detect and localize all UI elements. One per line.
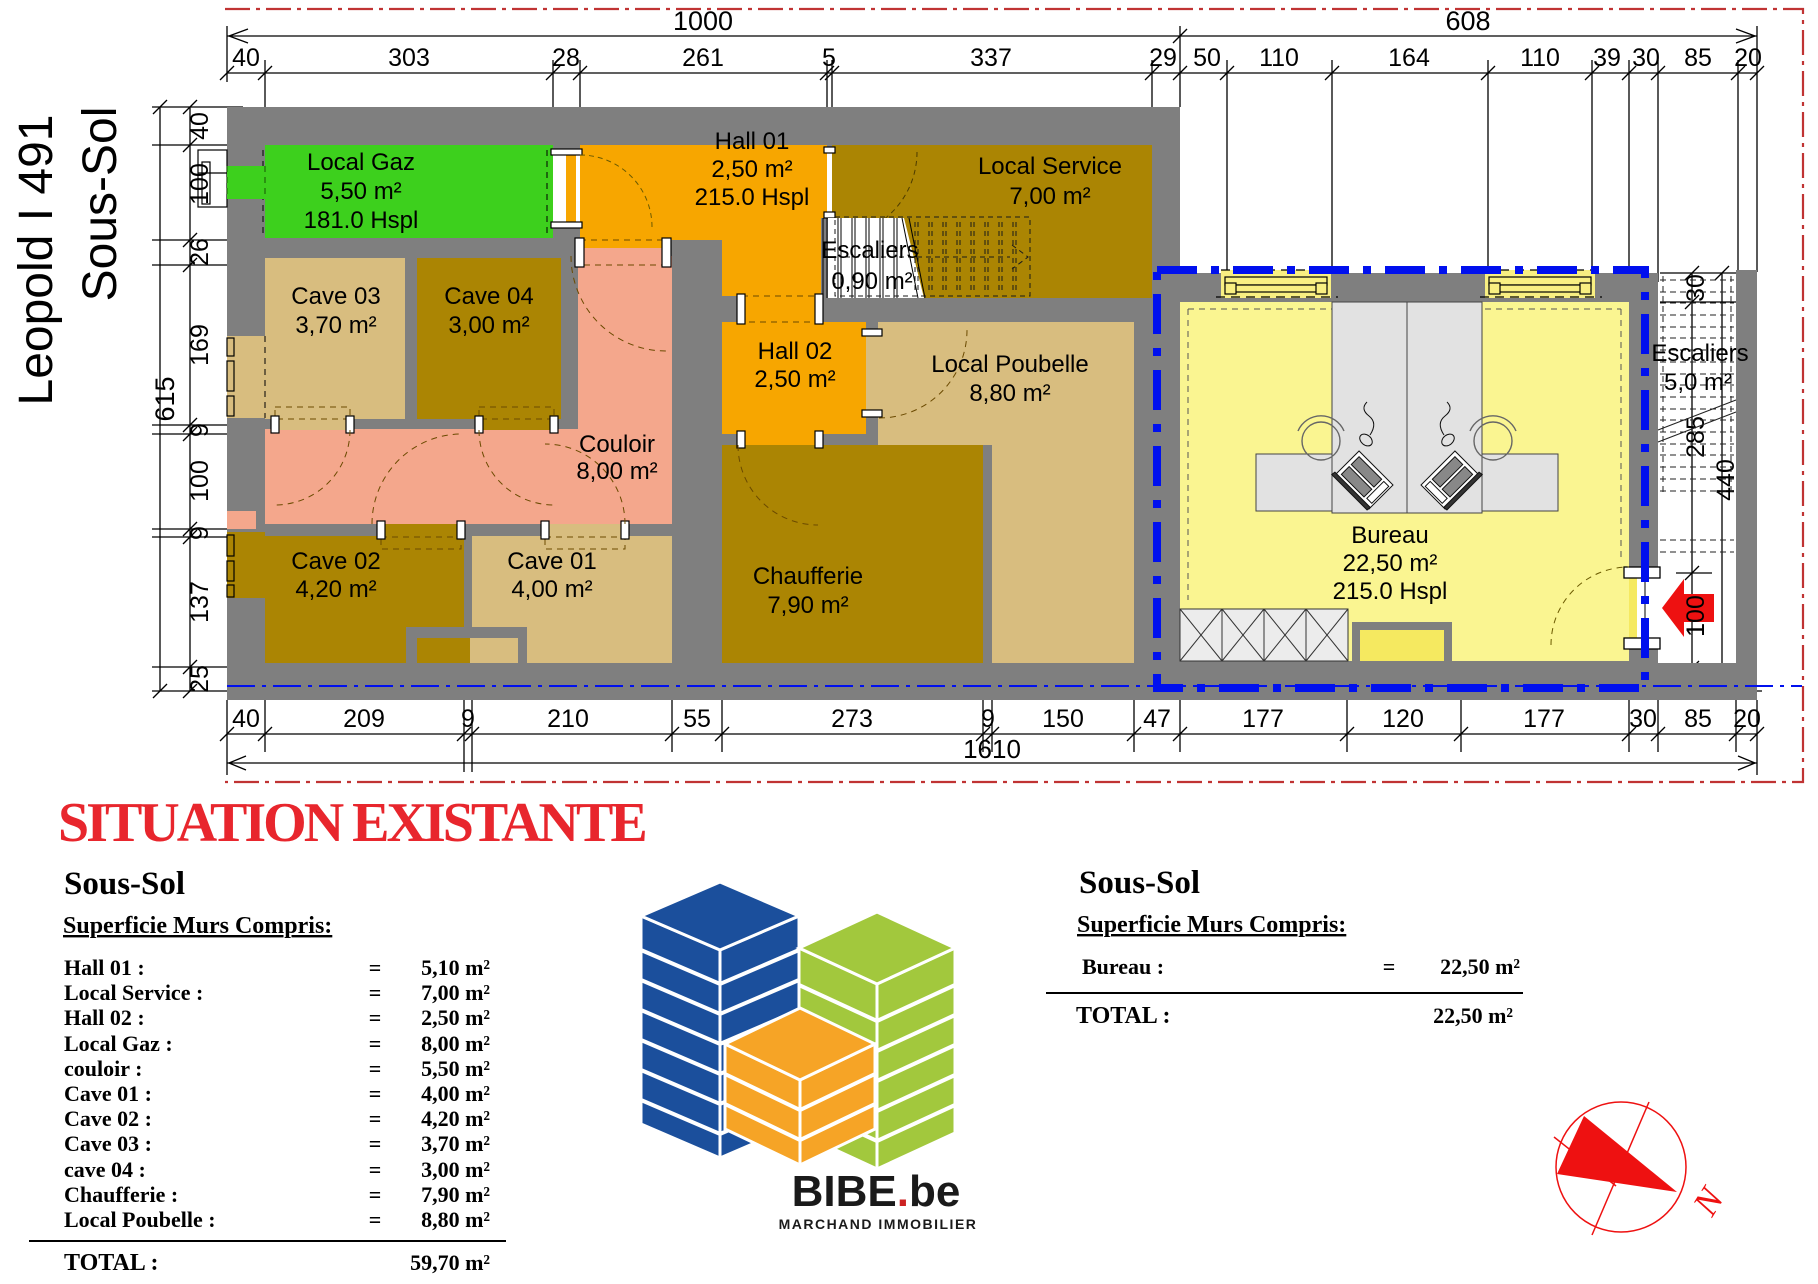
svg-text:SITUATION EXISTANTE: SITUATION EXISTANTE [58,792,645,854]
svg-text:59,70 m²: 59,70 m² [410,1250,490,1275]
svg-text:169: 169 [186,324,214,366]
svg-text:4,20 m²: 4,20 m² [295,576,376,603]
svg-text:608: 608 [1445,6,1490,36]
svg-text:215.0 Hspl: 215.0 Hspl [695,184,810,211]
svg-text:Cave 03 :: Cave 03 : [64,1131,152,1156]
svg-text:137: 137 [186,581,214,623]
svg-text:29: 29 [1149,44,1177,72]
svg-text:Cave 01: Cave 01 [507,548,596,575]
svg-text:26: 26 [186,238,214,266]
svg-text:Bureau :: Bureau : [1082,954,1164,979]
svg-text:Escaliers: Escaliers [1651,340,1748,367]
svg-text:9: 9 [186,526,214,540]
svg-text:22,50 m²: 22,50 m² [1343,550,1438,577]
svg-text:181.0 Hspl: 181.0 Hspl [304,207,419,234]
svg-text:7,90 m²: 7,90 m² [421,1182,490,1207]
svg-text:TOTAL :: TOTAL : [1076,1003,1170,1029]
svg-text:Chaufferie :: Chaufferie : [64,1182,178,1207]
svg-text:100: 100 [1682,595,1710,637]
svg-text:164: 164 [1388,44,1430,72]
svg-text:Hall 01 :: Hall 01 : [64,955,145,980]
svg-text:40: 40 [232,705,260,733]
svg-text:47: 47 [1143,705,1171,733]
svg-text:MARCHAND IMMOBILIER: MARCHAND IMMOBILIER [779,1216,978,1232]
svg-text:Cave 01 :: Cave 01 : [64,1081,152,1106]
svg-text:215.0 Hspl: 215.0 Hspl [1333,578,1448,605]
svg-text:110: 110 [1520,44,1560,72]
svg-text:3,70 m²: 3,70 m² [421,1131,490,1156]
svg-text:Hall 01: Hall 01 [715,128,790,155]
svg-text:177: 177 [1523,705,1565,733]
svg-text:8,00 m²: 8,00 m² [421,1031,490,1056]
svg-text:0,90 m²: 0,90 m² [831,268,912,295]
svg-text:337: 337 [970,44,1012,72]
svg-text:Bureau: Bureau [1351,522,1428,549]
svg-text:85: 85 [1684,705,1712,733]
svg-text:Hall 02: Hall 02 [758,338,833,365]
svg-text:177: 177 [1242,705,1284,733]
svg-text:TOTAL :: TOTAL : [64,1250,158,1276]
svg-text:Local Poubelle :: Local Poubelle : [64,1207,216,1232]
svg-text:Cave 02 :: Cave 02 : [64,1106,152,1131]
svg-text:=: = [369,1131,382,1156]
svg-text:4,00 m²: 4,00 m² [511,576,592,603]
svg-text:=: = [369,1182,382,1207]
svg-text:39: 39 [1593,44,1621,72]
svg-text:=: = [1383,954,1396,979]
svg-text:1000: 1000 [673,6,733,36]
svg-text:couloir :: couloir : [64,1056,142,1081]
svg-text:7,00 m²: 7,00 m² [1009,183,1090,210]
svg-text:3,00 m²: 3,00 m² [421,1157,490,1182]
svg-text:440: 440 [1712,459,1740,501]
svg-text:120: 120 [1382,705,1424,733]
svg-text:28: 28 [552,44,580,72]
svg-text:Sous-Sol: Sous-Sol [1079,865,1200,901]
svg-text:3,00 m²: 3,00 m² [448,312,529,339]
svg-text:303: 303 [388,44,430,72]
svg-text:4,00 m²: 4,00 m² [421,1081,490,1106]
svg-text:Local Service :: Local Service : [64,980,203,1005]
svg-text:=: = [369,1207,382,1232]
svg-text:8,80 m²: 8,80 m² [969,380,1050,407]
svg-text:5: 5 [822,44,836,72]
svg-text:5,0 m²: 5,0 m² [1664,369,1732,396]
svg-text:Cave 02: Cave 02 [291,548,380,575]
svg-text:Cave 03: Cave 03 [291,283,380,310]
svg-text:5,50 m²: 5,50 m² [421,1056,490,1081]
svg-text:209: 209 [343,705,385,733]
svg-text:20: 20 [1733,705,1761,733]
svg-text:=: = [369,980,382,1005]
svg-text:4,20 m²: 4,20 m² [421,1106,490,1131]
svg-text:9: 9 [186,423,214,437]
svg-text:Leopold I 491: Leopold I 491 [10,115,63,406]
svg-text:7,90 m²: 7,90 m² [767,592,848,619]
svg-text:Cave 04: Cave 04 [444,283,533,310]
svg-text:Local Gaz :: Local Gaz : [64,1031,173,1056]
svg-text:273: 273 [831,705,873,733]
svg-text:3,70 m²: 3,70 m² [295,312,376,339]
svg-text:Local Gaz: Local Gaz [307,149,415,176]
svg-text:Chaufferie: Chaufferie [753,563,863,590]
svg-text:Superficie Murs Compris:: Superficie Murs Compris: [63,913,332,939]
svg-text:2,50 m²: 2,50 m² [421,1005,490,1030]
svg-text:=: = [369,1005,382,1030]
svg-text:40: 40 [186,112,214,140]
svg-text:110: 110 [1259,44,1299,72]
svg-text:8,00 m²: 8,00 m² [576,458,657,485]
svg-text:Escaliers: Escaliers [821,237,918,264]
svg-text:8,80 m²: 8,80 m² [421,1207,490,1232]
svg-text:Sous-Sol: Sous-Sol [64,866,185,902]
svg-text:20: 20 [1734,44,1762,72]
svg-text:30: 30 [1629,705,1657,733]
svg-text:Couloir: Couloir [579,431,655,458]
svg-text:cave 04 :: cave 04 : [64,1157,146,1182]
svg-text:=: = [369,1106,382,1131]
svg-text:=: = [369,955,382,980]
svg-text:9: 9 [461,705,475,733]
svg-text:25: 25 [186,665,214,693]
svg-text:7,00 m²: 7,00 m² [421,980,490,1005]
svg-text:100: 100 [186,163,214,205]
svg-text:9: 9 [981,705,995,733]
svg-text:Local Service: Local Service [978,153,1122,180]
svg-text:=: = [369,1056,382,1081]
svg-text:2,50 m²: 2,50 m² [754,366,835,393]
svg-text:85: 85 [1684,44,1712,72]
svg-text:Sous-Sol: Sous-Sol [74,107,127,302]
svg-text:BIBE.be: BIBE.be [792,1167,961,1216]
svg-text:150: 150 [1042,705,1084,733]
svg-text:2,50 m²: 2,50 m² [711,156,792,183]
svg-text:Superficie Murs Compris:: Superficie Murs Compris: [1077,912,1346,938]
svg-text:615: 615 [150,376,180,421]
svg-text:100: 100 [186,460,214,502]
svg-text:210: 210 [547,705,589,733]
svg-text:50: 50 [1193,44,1221,72]
svg-text:Hall 02 :: Hall 02 : [64,1005,145,1030]
svg-text:285: 285 [1682,416,1710,458]
svg-text:=: = [369,1081,382,1106]
svg-text:=: = [369,1031,382,1056]
svg-text:1610: 1610 [963,734,1021,764]
svg-text:22,50 m²: 22,50 m² [1433,1003,1513,1028]
svg-text:22,50 m²: 22,50 m² [1440,954,1520,979]
svg-text:40: 40 [232,44,260,72]
svg-text:=: = [369,1157,382,1182]
svg-text:30: 30 [1632,44,1660,72]
svg-text:Local Poubelle: Local Poubelle [931,351,1088,378]
svg-text:5,10 m²: 5,10 m² [421,955,490,980]
svg-text:5,50 m²: 5,50 m² [320,178,401,205]
svg-text:55: 55 [683,705,711,733]
svg-text:261: 261 [682,44,724,72]
svg-text:30: 30 [1682,274,1710,302]
